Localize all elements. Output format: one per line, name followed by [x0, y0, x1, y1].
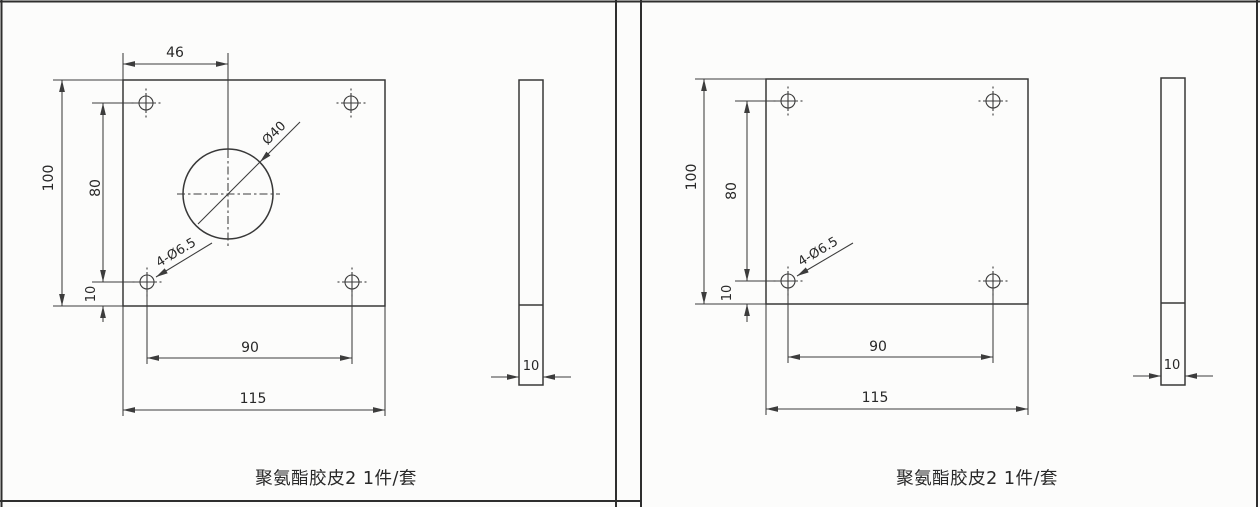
- part-caption: 聚氨酯胶皮2 1件/套: [896, 469, 1058, 489]
- left-plate-side-view: 10: [491, 80, 571, 385]
- left-plate-front-view: [123, 80, 385, 306]
- dim-100-label: 100: [684, 164, 700, 191]
- dim-10-edge: 10: [84, 286, 103, 322]
- dim-115-label: 115: [862, 390, 889, 406]
- right-plate-side-view: 10: [1133, 78, 1213, 385]
- dim-80: 80: [724, 101, 781, 281]
- drawing-canvas: 46 100 80 10 90: [0, 0, 1260, 507]
- corner-holes-label: 4-Ø6.5: [796, 234, 841, 269]
- side-view-outline: [1161, 78, 1185, 385]
- dim-10-edge: 10: [720, 285, 747, 322]
- corner-hole-symbol: [337, 89, 366, 118]
- dim-115-label: 115: [240, 391, 267, 407]
- dim-100: 100: [41, 80, 123, 306]
- dim-46: 46: [123, 45, 228, 150]
- dim-80-label: 80: [88, 179, 104, 197]
- leader-corner-holes: 4-Ø6.5: [796, 234, 853, 276]
- dim-100-label: 100: [41, 165, 57, 192]
- thickness-label: 10: [1164, 358, 1181, 373]
- left-panel: 46 100 80 10 90: [41, 45, 571, 489]
- thickness-label: 10: [523, 359, 540, 374]
- dim-46-label: 46: [166, 45, 184, 61]
- dim-80: 80: [88, 103, 139, 282]
- right-plate-front-view: [766, 79, 1028, 304]
- dim-10-label: 10: [720, 285, 735, 302]
- leader-center-hole: Ø40: [198, 119, 300, 224]
- dim-90: 90: [147, 290, 352, 364]
- plate-outline: [766, 79, 1028, 304]
- dim-80-label: 80: [724, 182, 740, 200]
- corner-hole-symbol: [979, 87, 1008, 116]
- plate-outline: [123, 80, 385, 306]
- corner-holes-label: 4-Ø6.5: [154, 235, 199, 270]
- dim-115: 115: [766, 304, 1028, 415]
- right-panel: 100 80 10 90 115: [684, 78, 1213, 489]
- dim-90-label: 90: [241, 340, 259, 356]
- side-view-outline: [519, 80, 543, 385]
- dim-115: 115: [123, 306, 385, 416]
- dim-90: 90: [788, 289, 993, 363]
- dim-90-label: 90: [869, 339, 887, 355]
- dim-10-label: 10: [84, 286, 99, 303]
- center-hole-label: Ø40: [260, 119, 290, 149]
- drawing-sheet: 46 100 80 10 90: [0, 0, 1260, 507]
- leader-corner-holes: 4-Ø6.5: [154, 235, 212, 277]
- part-caption: 聚氨酯胶皮2 1件/套: [255, 469, 417, 489]
